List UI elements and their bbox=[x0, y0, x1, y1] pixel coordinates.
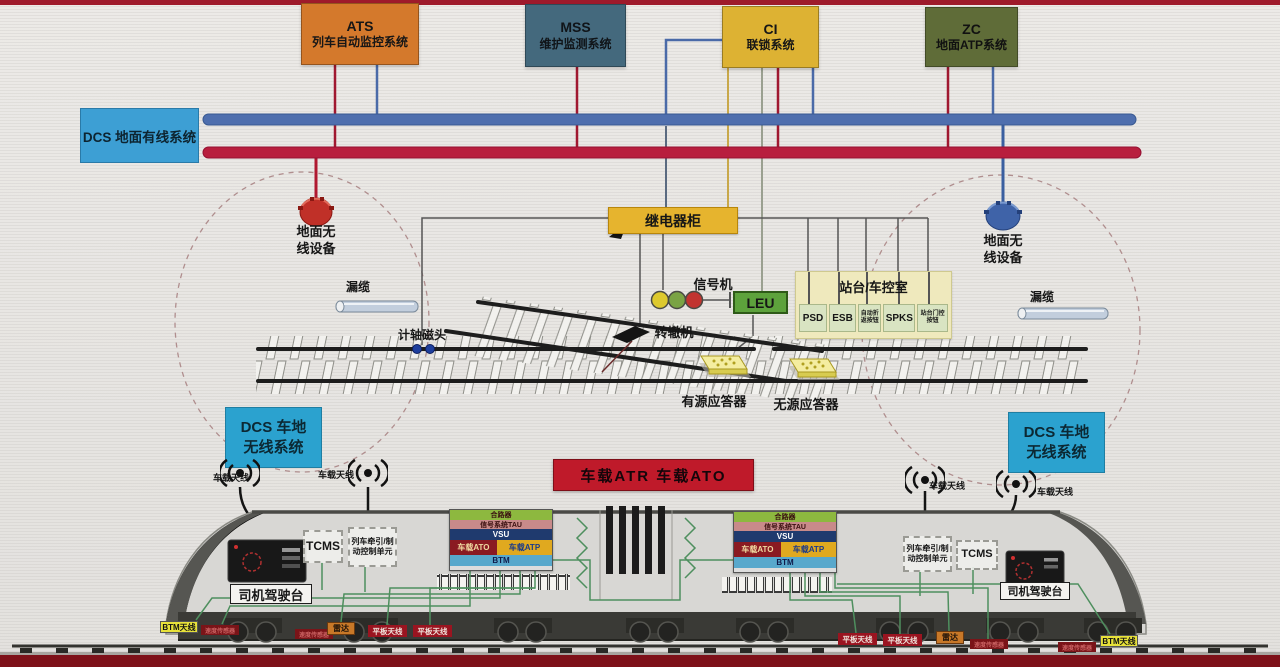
ats-system-box: ATS 列车自动监控系统 bbox=[301, 3, 419, 65]
driver-display-left bbox=[228, 540, 306, 582]
ground-radio-right-label: 地面无线设备 bbox=[979, 233, 1027, 267]
terminal-row-right bbox=[722, 577, 832, 593]
connector-lines bbox=[316, 40, 1003, 291]
combiner-band: 合路器 bbox=[450, 510, 552, 520]
onboard-atp-cell: 车载ATP bbox=[497, 540, 552, 555]
traction-brake-unit-right: 列车牵引/制动控制单元 bbox=[903, 536, 952, 572]
ground-radio-right-icon bbox=[984, 201, 1022, 230]
vsu-band: VSU bbox=[734, 531, 836, 542]
active-balise-label: 有源应答器 bbox=[676, 391, 752, 410]
speed-sensor-label: 速度传感器 bbox=[1058, 642, 1096, 652]
train-antenna-label: 车载天线 bbox=[213, 471, 249, 484]
ground-radio-left-icon bbox=[298, 197, 334, 226]
dcs-radio-right-box: DCS 车地无线系统 bbox=[1008, 412, 1105, 473]
psd-button: PSD bbox=[799, 304, 827, 332]
plate-antenna-label: 平板天线 bbox=[368, 625, 407, 637]
auto-turnback-button: 自动折返按钮 bbox=[858, 304, 881, 332]
ci-name: 联锁系统 bbox=[746, 38, 794, 53]
zc-name: 地面ATP系统 bbox=[936, 38, 1007, 53]
dcs-wired-box: DCS 地面有线系统 bbox=[80, 108, 199, 163]
leaky-cable-left-icon bbox=[336, 301, 418, 312]
plate-antenna-label: 平板天线 bbox=[838, 633, 877, 645]
dcs-red-bus bbox=[203, 147, 1141, 158]
zc-system-box: ZC 地面ATP系统 bbox=[925, 7, 1018, 67]
btm-antenna-label-left: BTM天线 bbox=[160, 621, 198, 633]
station-panel-buttons: PSD ESB 自动折返按钮 SPKS 站台门控按钮 bbox=[799, 304, 948, 332]
driver-console-label-right: 司机驾驶台 bbox=[1000, 582, 1070, 600]
mss-name: 维护监测系统 bbox=[539, 37, 611, 52]
tcms-box-left: TCMS bbox=[303, 530, 343, 563]
ci-abbr: CI bbox=[764, 21, 778, 39]
ci-system-box: CI 联锁系统 bbox=[722, 6, 819, 68]
zc-abbr: ZC bbox=[962, 21, 981, 39]
spks-button: SPKS bbox=[883, 304, 915, 332]
station-control-panel: 站台/车控室 PSD ESB 自动折返按钮 SPKS 站台门控按钮 bbox=[795, 271, 952, 339]
leaky-cable-right-label: 漏缆 bbox=[1022, 288, 1062, 305]
ground-radio-left-label: 地面无线设备 bbox=[292, 224, 340, 258]
radar-label-right: 雷达 bbox=[936, 631, 964, 644]
vsu-band: VSU bbox=[450, 529, 552, 540]
wireless-antenna-icon bbox=[996, 466, 1036, 503]
top-frame-strip bbox=[0, 0, 1280, 5]
train-antenna-label: 车载天线 bbox=[318, 468, 354, 481]
speed-sensor-label: 速度传感器 bbox=[201, 625, 239, 635]
onboard-atp-cell: 车载ATP bbox=[781, 542, 836, 557]
passive-balise-label: 无源应答器 bbox=[768, 394, 844, 413]
leaky-cable-left-label: 漏缆 bbox=[338, 278, 378, 295]
train bbox=[166, 506, 1146, 642]
leaky-cable-right-icon bbox=[1018, 308, 1108, 319]
tau-band: 信号系统TAU bbox=[450, 520, 552, 529]
ato-atp-row: 车载ATO 车载ATP bbox=[450, 540, 552, 555]
mss-system-box: MSS 维护监测系统 bbox=[525, 4, 626, 67]
ats-abbr: ATS bbox=[347, 18, 374, 36]
axle-counter-label: 计轴磁头 bbox=[390, 326, 454, 343]
tau-band: 信号系统TAU bbox=[734, 522, 836, 531]
leu-box: LEU bbox=[733, 291, 788, 314]
onboard-atp-ato-banner: 车载ATR 车载ATO bbox=[553, 459, 754, 491]
relay-cabinet-box: 继电器柜 bbox=[608, 207, 738, 234]
diagram-artwork bbox=[0, 0, 1280, 667]
speed-sensor-label: 速度传感器 bbox=[970, 639, 1008, 649]
tcms-box-right: TCMS bbox=[956, 540, 998, 570]
ato-atp-row: 车载ATO 车载ATP bbox=[734, 542, 836, 557]
station-panel-title: 站台/车控室 bbox=[796, 277, 951, 296]
dcs-blue-bus bbox=[203, 114, 1136, 125]
plate-antenna-label: 平板天线 bbox=[413, 625, 452, 637]
train-antenna-label: 车载天线 bbox=[929, 479, 965, 492]
traction-brake-unit-left: 列车牵引/制动控制单元 bbox=[348, 527, 397, 567]
combiner-band: 合路器 bbox=[734, 512, 836, 522]
btm-band: BTM bbox=[734, 557, 836, 568]
ats-name: 列车自动监控系统 bbox=[312, 35, 408, 50]
btm-antenna-label-right: BTM天线 bbox=[1100, 635, 1138, 647]
esb-button: ESB bbox=[829, 304, 856, 332]
radar-label-left: 雷达 bbox=[327, 622, 355, 635]
train-antenna-label: 车载天线 bbox=[1037, 485, 1073, 498]
onboard-ato-cell: 车载ATO bbox=[734, 542, 781, 557]
psd-control-button: 站台门控按钮 bbox=[917, 304, 948, 332]
driver-console-label-left: 司机驾驶台 bbox=[230, 584, 312, 604]
onboard-equipment-stack-right: 合路器 信号系统TAU VSU 车载ATO 车载ATP BTM bbox=[733, 511, 837, 573]
btm-band: BTM bbox=[450, 555, 552, 566]
onboard-equipment-stack-left: 合路器 信号系统TAU VSU 车载ATO 车载ATP BTM bbox=[449, 509, 553, 571]
bottom-frame-strip bbox=[0, 655, 1280, 667]
cbtc-system-diagram: ATS 列车自动监控系统 MSS 维护监测系统 CI 联锁系统 ZC 地面ATP… bbox=[0, 0, 1280, 667]
plate-antenna-label: 平板天线 bbox=[883, 634, 922, 646]
mss-abbr: MSS bbox=[560, 19, 590, 37]
signal-lights bbox=[652, 292, 703, 309]
onboard-ato-cell: 车载ATO bbox=[450, 540, 497, 555]
point-machine-label: 转辙机 bbox=[650, 322, 698, 341]
